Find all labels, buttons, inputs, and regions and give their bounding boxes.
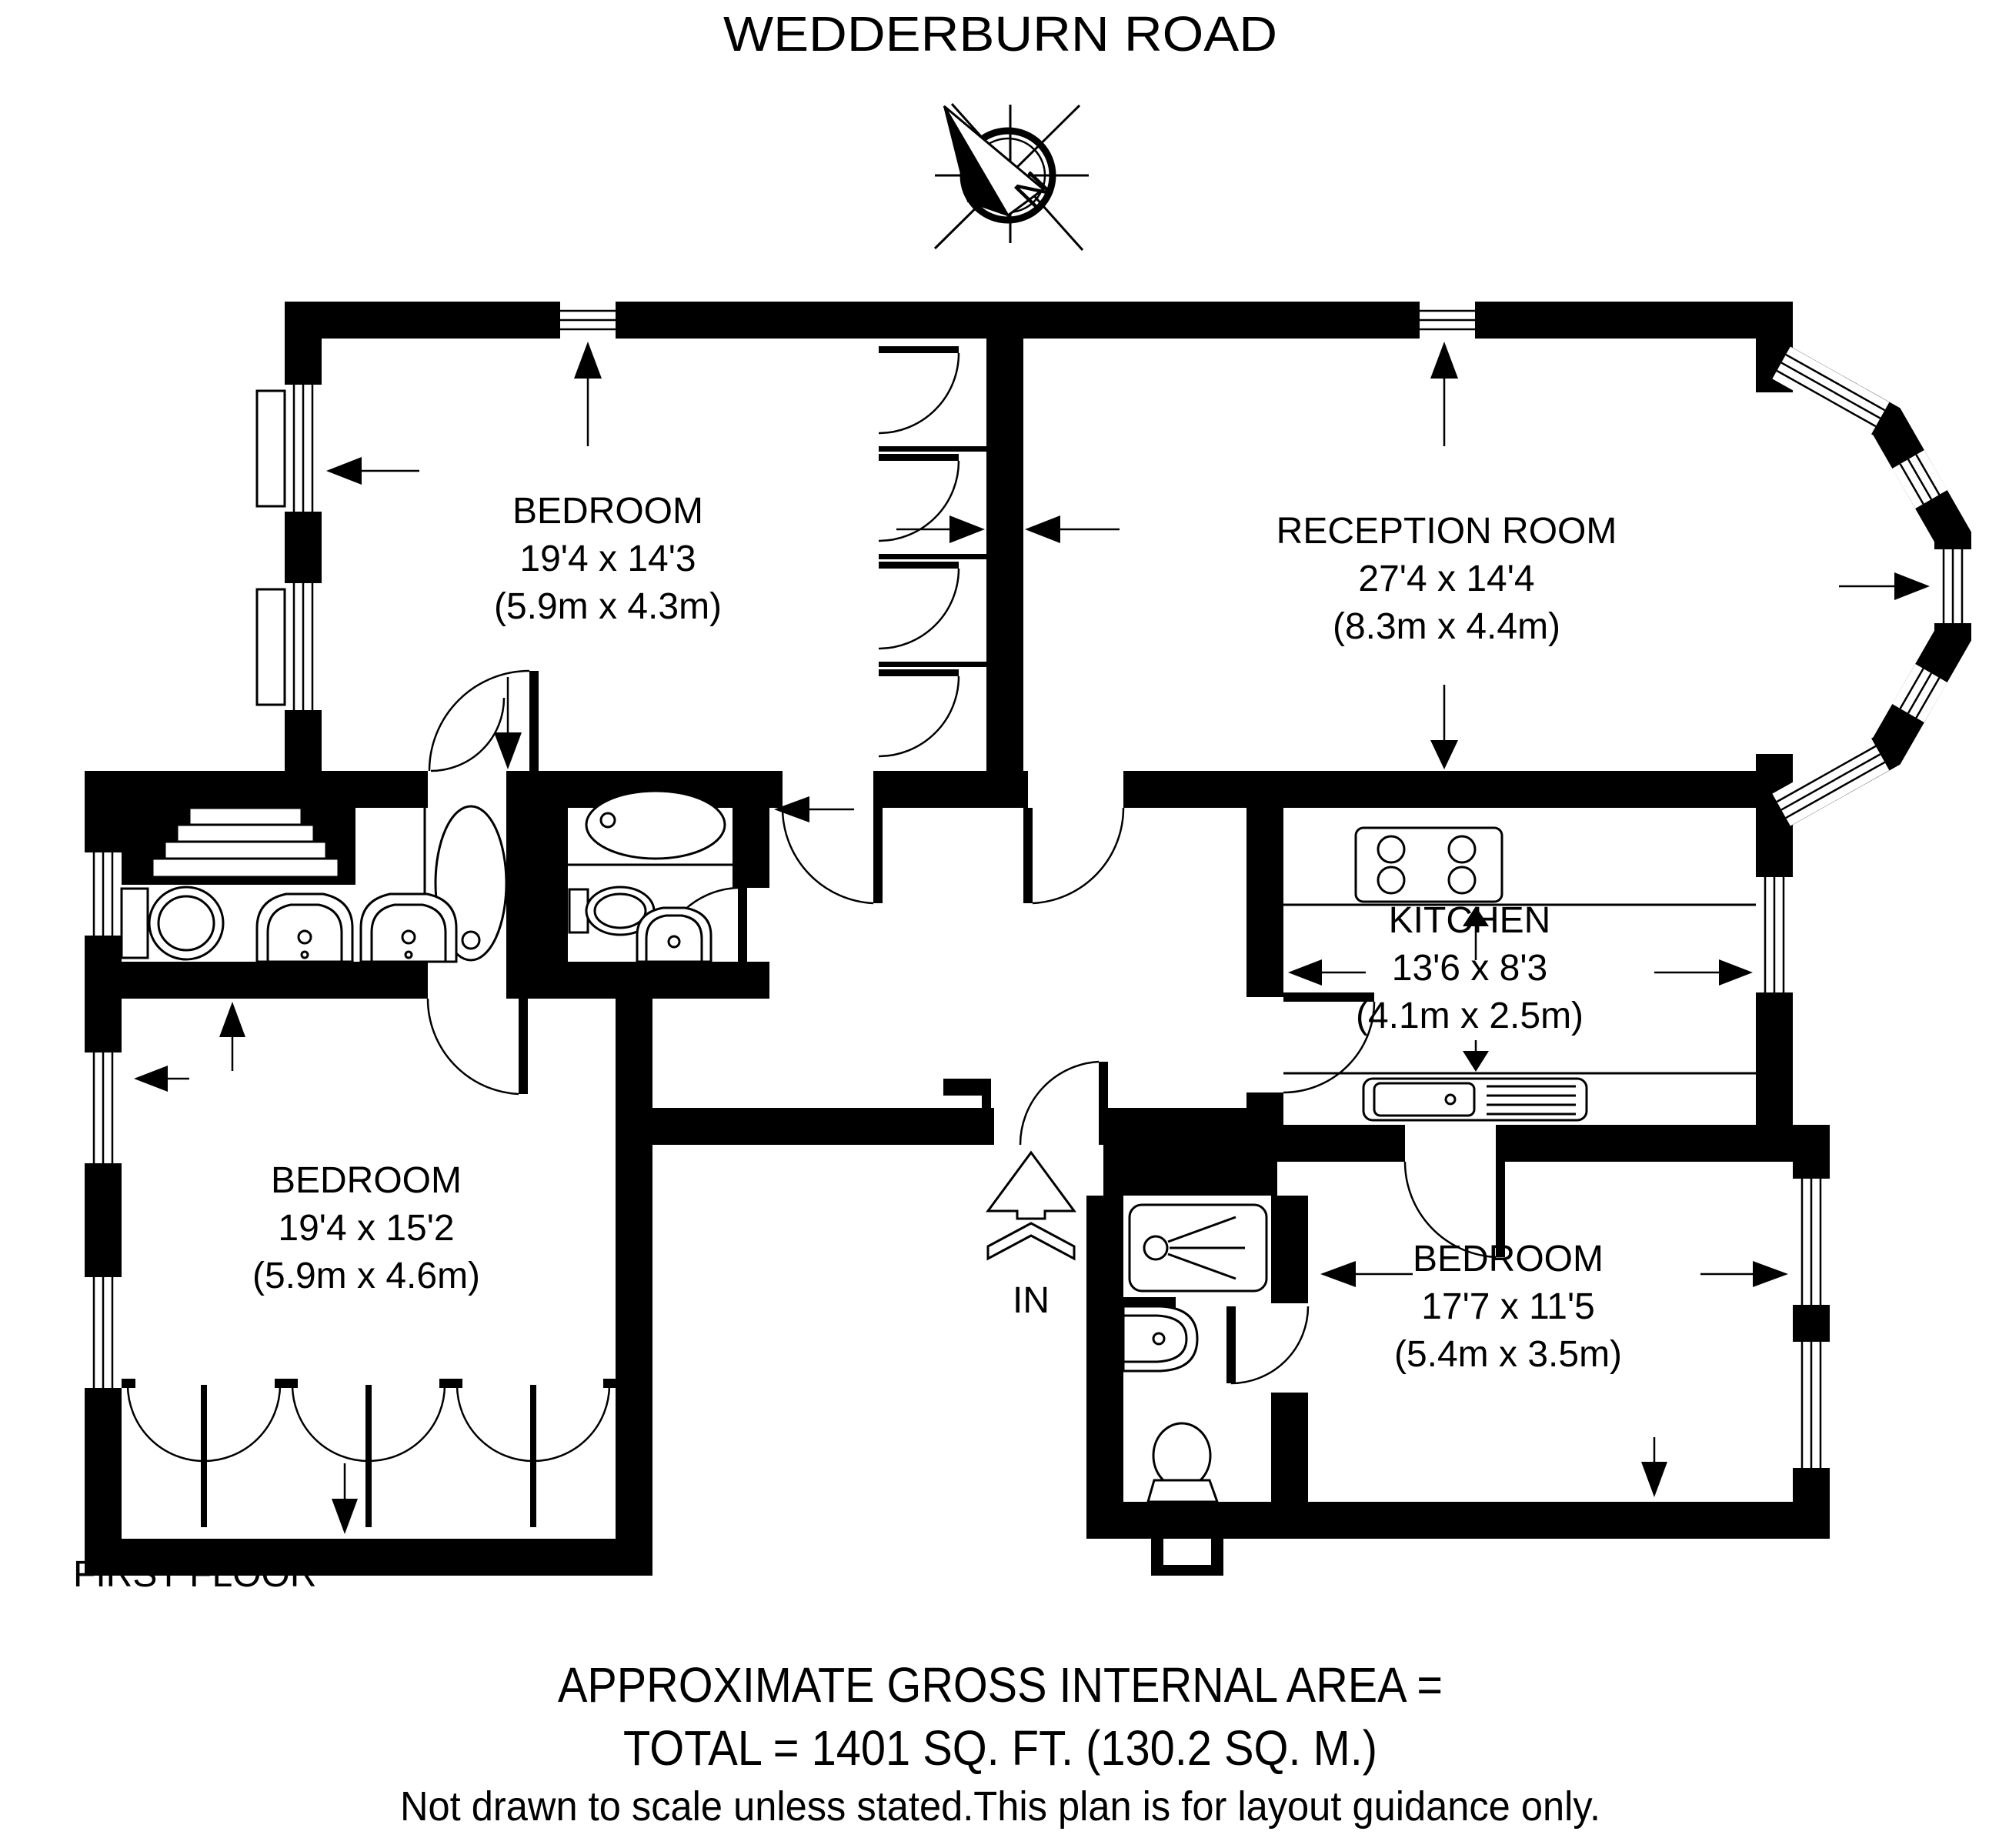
window [1793,1179,1830,1305]
window [1756,877,1793,992]
window [1420,302,1475,339]
stairs [122,808,355,885]
room-name: KITCHEN [1389,900,1551,941]
wardrobe [122,1379,616,1527]
room-size-m: (4.1m x 2.5m) [1356,996,1584,1036]
room-bedroom-bottom-right: BEDROOM 17'7 x 11'5 (5.4m x 3.5m) [1394,1239,1622,1375]
room-size-ft: 19'4 x 14'3 [519,539,696,579]
sink [361,894,456,962]
footer: APPROXIMATE GROSS INTERNAL AREA = TOTAL … [400,1657,1600,1830]
page-title: WEDDERBURN ROAD [723,6,1277,62]
door [428,999,528,1094]
dimension-arrow [1839,572,1930,600]
floor-plan-page: WEDDERBURN ROAD N [0,0,1999,1848]
footer-line1: APPROXIMATE GROSS INTERNAL AREA = [558,1657,1443,1713]
room-reception: RECEPTION ROOM 27'4 x 14'4 (8.3m x 4.4m) [1276,511,1617,647]
closet-strip [879,346,986,756]
shower-room [1123,1205,1266,1502]
toilet [122,887,223,959]
room-kitchen: KITCHEN 13'6 x 8'3 (4.1m x 2.5m) [1356,900,1584,1036]
room-size-ft: 13'6 x 8'3 [1392,948,1547,989]
dimension-arrow [1025,515,1120,543]
sink [257,894,352,962]
entrance-label: IN [1013,1280,1050,1321]
dimension-arrow [1700,1261,1788,1287]
dimension-arrow [1430,685,1458,769]
footer-line3: Not drawn to scale unless stated.This pl… [400,1783,1600,1830]
room-name: BEDROOM [512,491,703,532]
dimension-arrow [1463,1040,1489,1072]
dimension-arrow [219,1002,245,1071]
entrance-arrow-icon [988,1152,1074,1259]
bathroom-2 [568,791,733,962]
door [783,808,883,903]
window [257,385,322,512]
entrance-door [994,1062,1108,1145]
toilet [1148,1423,1217,1502]
dimension-arrow [1654,959,1753,986]
dimension-arrow [134,1066,189,1092]
compass-icon: N [935,104,1089,250]
dimension-arrow [332,1463,358,1534]
dimension-arrow [1288,959,1366,986]
sink [1123,1306,1197,1371]
dimension-arrow [574,342,602,446]
sink [1363,1079,1587,1120]
footer-line2: TOTAL = 1401 SQ. FT. (130.2 SQ. M.) [623,1720,1377,1776]
window [85,852,122,936]
sink [637,908,711,962]
room-size-m: (5.4m x 3.5m) [1394,1334,1622,1375]
window [257,583,322,710]
dimension-arrow [896,515,985,543]
door [429,671,539,771]
hob [1356,828,1502,902]
window [85,1277,122,1388]
window [560,302,616,339]
dimension-arrow [326,457,419,485]
room-name: BEDROOM [271,1160,462,1201]
room-bedroom-bottom-left: BEDROOM 19'4 x 15'2 (5.9m x 4.6m) [252,1160,480,1296]
floor-label: FIRST FLOOR [73,1554,316,1595]
dimension-arrow [1641,1437,1667,1497]
room-size-m: (8.3m x 4.4m) [1333,606,1560,647]
room-name: BEDROOM [1413,1239,1604,1279]
dimension-arrow [494,677,522,769]
dimension-arrow [1320,1261,1413,1287]
room-name: RECEPTION ROOM [1276,511,1617,552]
shower [1130,1205,1266,1291]
dimension-arrow [774,796,854,822]
window [85,1052,122,1163]
dimension-arrow [1430,342,1458,446]
room-size-ft: 27'4 x 14'4 [1358,559,1534,599]
room-bedroom-top-left: BEDROOM 19'4 x 14'3 (5.9m x 4.3m) [494,491,722,627]
window [1793,1342,1830,1468]
room-size-m: (5.9m x 4.6m) [252,1256,480,1296]
window [1934,549,1971,623]
door [1023,808,1123,903]
room-size-ft: 19'4 x 15'2 [278,1208,454,1249]
floor-plan: WEDDERBURN ROAD N [0,0,1999,1848]
door [1226,1306,1308,1383]
room-size-ft: 17'7 x 11'5 [1421,1286,1595,1327]
bathtub [586,791,725,859]
room-size-m: (5.9m x 4.3m) [494,586,722,627]
